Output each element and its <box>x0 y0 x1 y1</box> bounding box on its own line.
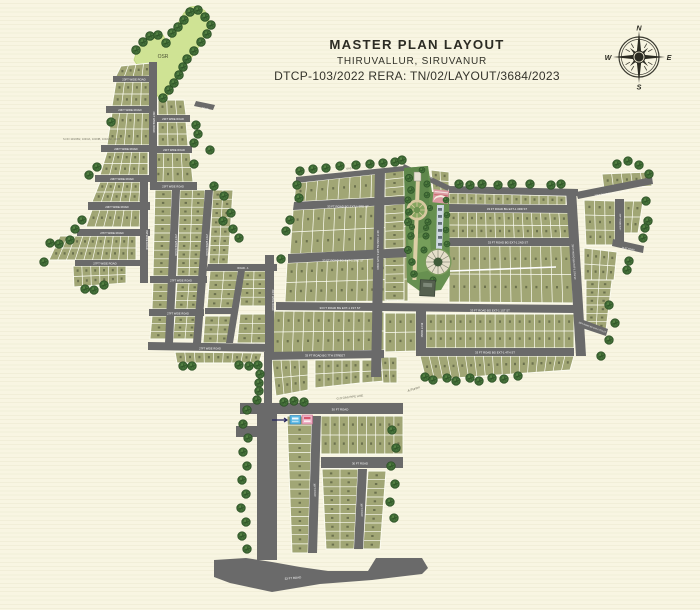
svg-text:30FT WIDE ROAD: 30FT WIDE ROAD <box>271 290 274 311</box>
svg-text:A.Puram: A.Puram <box>406 385 421 393</box>
svg-text:33 FT ROAD BG EXT-1 1ST ST: 33 FT ROAD BG EXT-1 1ST ST <box>319 306 360 310</box>
svg-text:27FT WIDE ROAD: 27FT WIDE ROAD <box>93 262 116 266</box>
svg-text:33 FT ROAD BG EXT-1 4TH ST: 33 FT ROAD BG EXT-1 4TH ST <box>475 351 515 355</box>
svg-text:8M WIDE ROAD: 8M WIDE ROAD <box>145 230 149 249</box>
svg-text:33 FT ROAD BG 7TH STREET: 33 FT ROAD BG 7TH STREET <box>305 354 345 358</box>
svg-text:33 FT ROAD BG EXT-1 2ND ST: 33 FT ROAD BG EXT-1 2ND ST <box>322 258 364 262</box>
svg-text:23FT WIDE ROAD: 23FT WIDE ROAD <box>162 117 184 121</box>
svg-text:23FT WIDE ROAD: 23FT WIDE ROAD <box>122 78 145 82</box>
svg-text:W: W <box>605 53 613 62</box>
svg-text:S: S <box>637 83 642 92</box>
svg-text:33 FT ROAD BG EXT-1 3RD ST: 33 FT ROAD BG EXT-1 3RD ST <box>327 205 369 209</box>
svg-text:30 FT ROAD: 30 FT ROAD <box>332 408 349 412</box>
svg-text:27FT WIDE ROAD: 27FT WIDE ROAD <box>100 231 123 235</box>
svg-text:27FT WIDE ROAD: 27FT WIDE ROAD <box>205 234 209 256</box>
svg-text:MASTER PLAN LAYOUT: MASTER PLAN LAYOUT <box>329 37 504 52</box>
svg-text:DTCP-103/2022 RERA: TN/02/LAYO: DTCP-103/2022 RERA: TN/02/LAYOUT/3684/20… <box>274 69 560 83</box>
svg-text:27FT WIDE ROAD: 27FT WIDE ROAD <box>167 311 189 315</box>
svg-text:23FT WIDE ROAD: 23FT WIDE ROAD <box>152 112 155 133</box>
svg-text:OSR: OSR <box>158 54 169 60</box>
svg-text:23FT WIDE ROAD: 23FT WIDE ROAD <box>162 185 184 189</box>
svg-text:23FT WIDE ROAD: 23FT WIDE ROAD <box>105 205 128 209</box>
svg-text:33 FT ROAD BG EXT-1 BLVD ROAD: 33 FT ROAD BG EXT-1 BLVD ROAD <box>376 230 379 270</box>
svg-text:27FT WIDE ROAD: 27FT WIDE ROAD <box>199 346 221 350</box>
svg-text:27FT WIDE ROAD: 27FT WIDE ROAD <box>170 278 192 282</box>
svg-text:27FT WIDE ROAD: 27FT WIDE ROAD <box>174 234 178 256</box>
svg-text:S.NO 103/2B2, 103/3A, 103/3B,: S.NO 103/2B2, 103/3A, 103/3B, 104/1B2, 1… <box>63 137 121 141</box>
svg-text:23FT WIDE ROAD: 23FT WIDE ROAD <box>110 177 133 181</box>
svg-text:N: N <box>636 24 642 33</box>
svg-text:ROAD - 1: ROAD - 1 <box>237 266 249 270</box>
svg-text:THIRUVALLUR, SIRUVANUR: THIRUVALLUR, SIRUVANUR <box>337 56 487 67</box>
svg-text:33 FT ROAD BG EXT-1 2ND ST: 33 FT ROAD BG EXT-1 2ND ST <box>488 241 528 245</box>
svg-text:G.O GAS PIPE LINE: G.O GAS PIPE LINE <box>336 393 363 400</box>
svg-text:23FT WIDE ROAD: 23FT WIDE ROAD <box>114 147 137 151</box>
svg-text:30 FT ROAD: 30 FT ROAD <box>352 462 368 466</box>
svg-text:E: E <box>667 53 672 62</box>
svg-text:33FT ROAD EXT: 33FT ROAD EXT <box>619 214 622 232</box>
svg-text:33 FT ROAD BG EXT-1 3RD ST: 33 FT ROAD BG EXT-1 3RD ST <box>487 207 527 211</box>
svg-text:23FT WIDE ROAD: 23FT WIDE ROAD <box>163 148 185 152</box>
svg-text:36 FT ROAD: 36 FT ROAD <box>420 323 423 338</box>
svg-text:ROAD: ROAD <box>201 107 209 111</box>
svg-text:33 FT ROAD BG EXT-1 1ST ST: 33 FT ROAD BG EXT-1 1ST ST <box>470 309 510 313</box>
svg-text:23FT WIDE ROAD: 23FT WIDE ROAD <box>118 108 141 112</box>
